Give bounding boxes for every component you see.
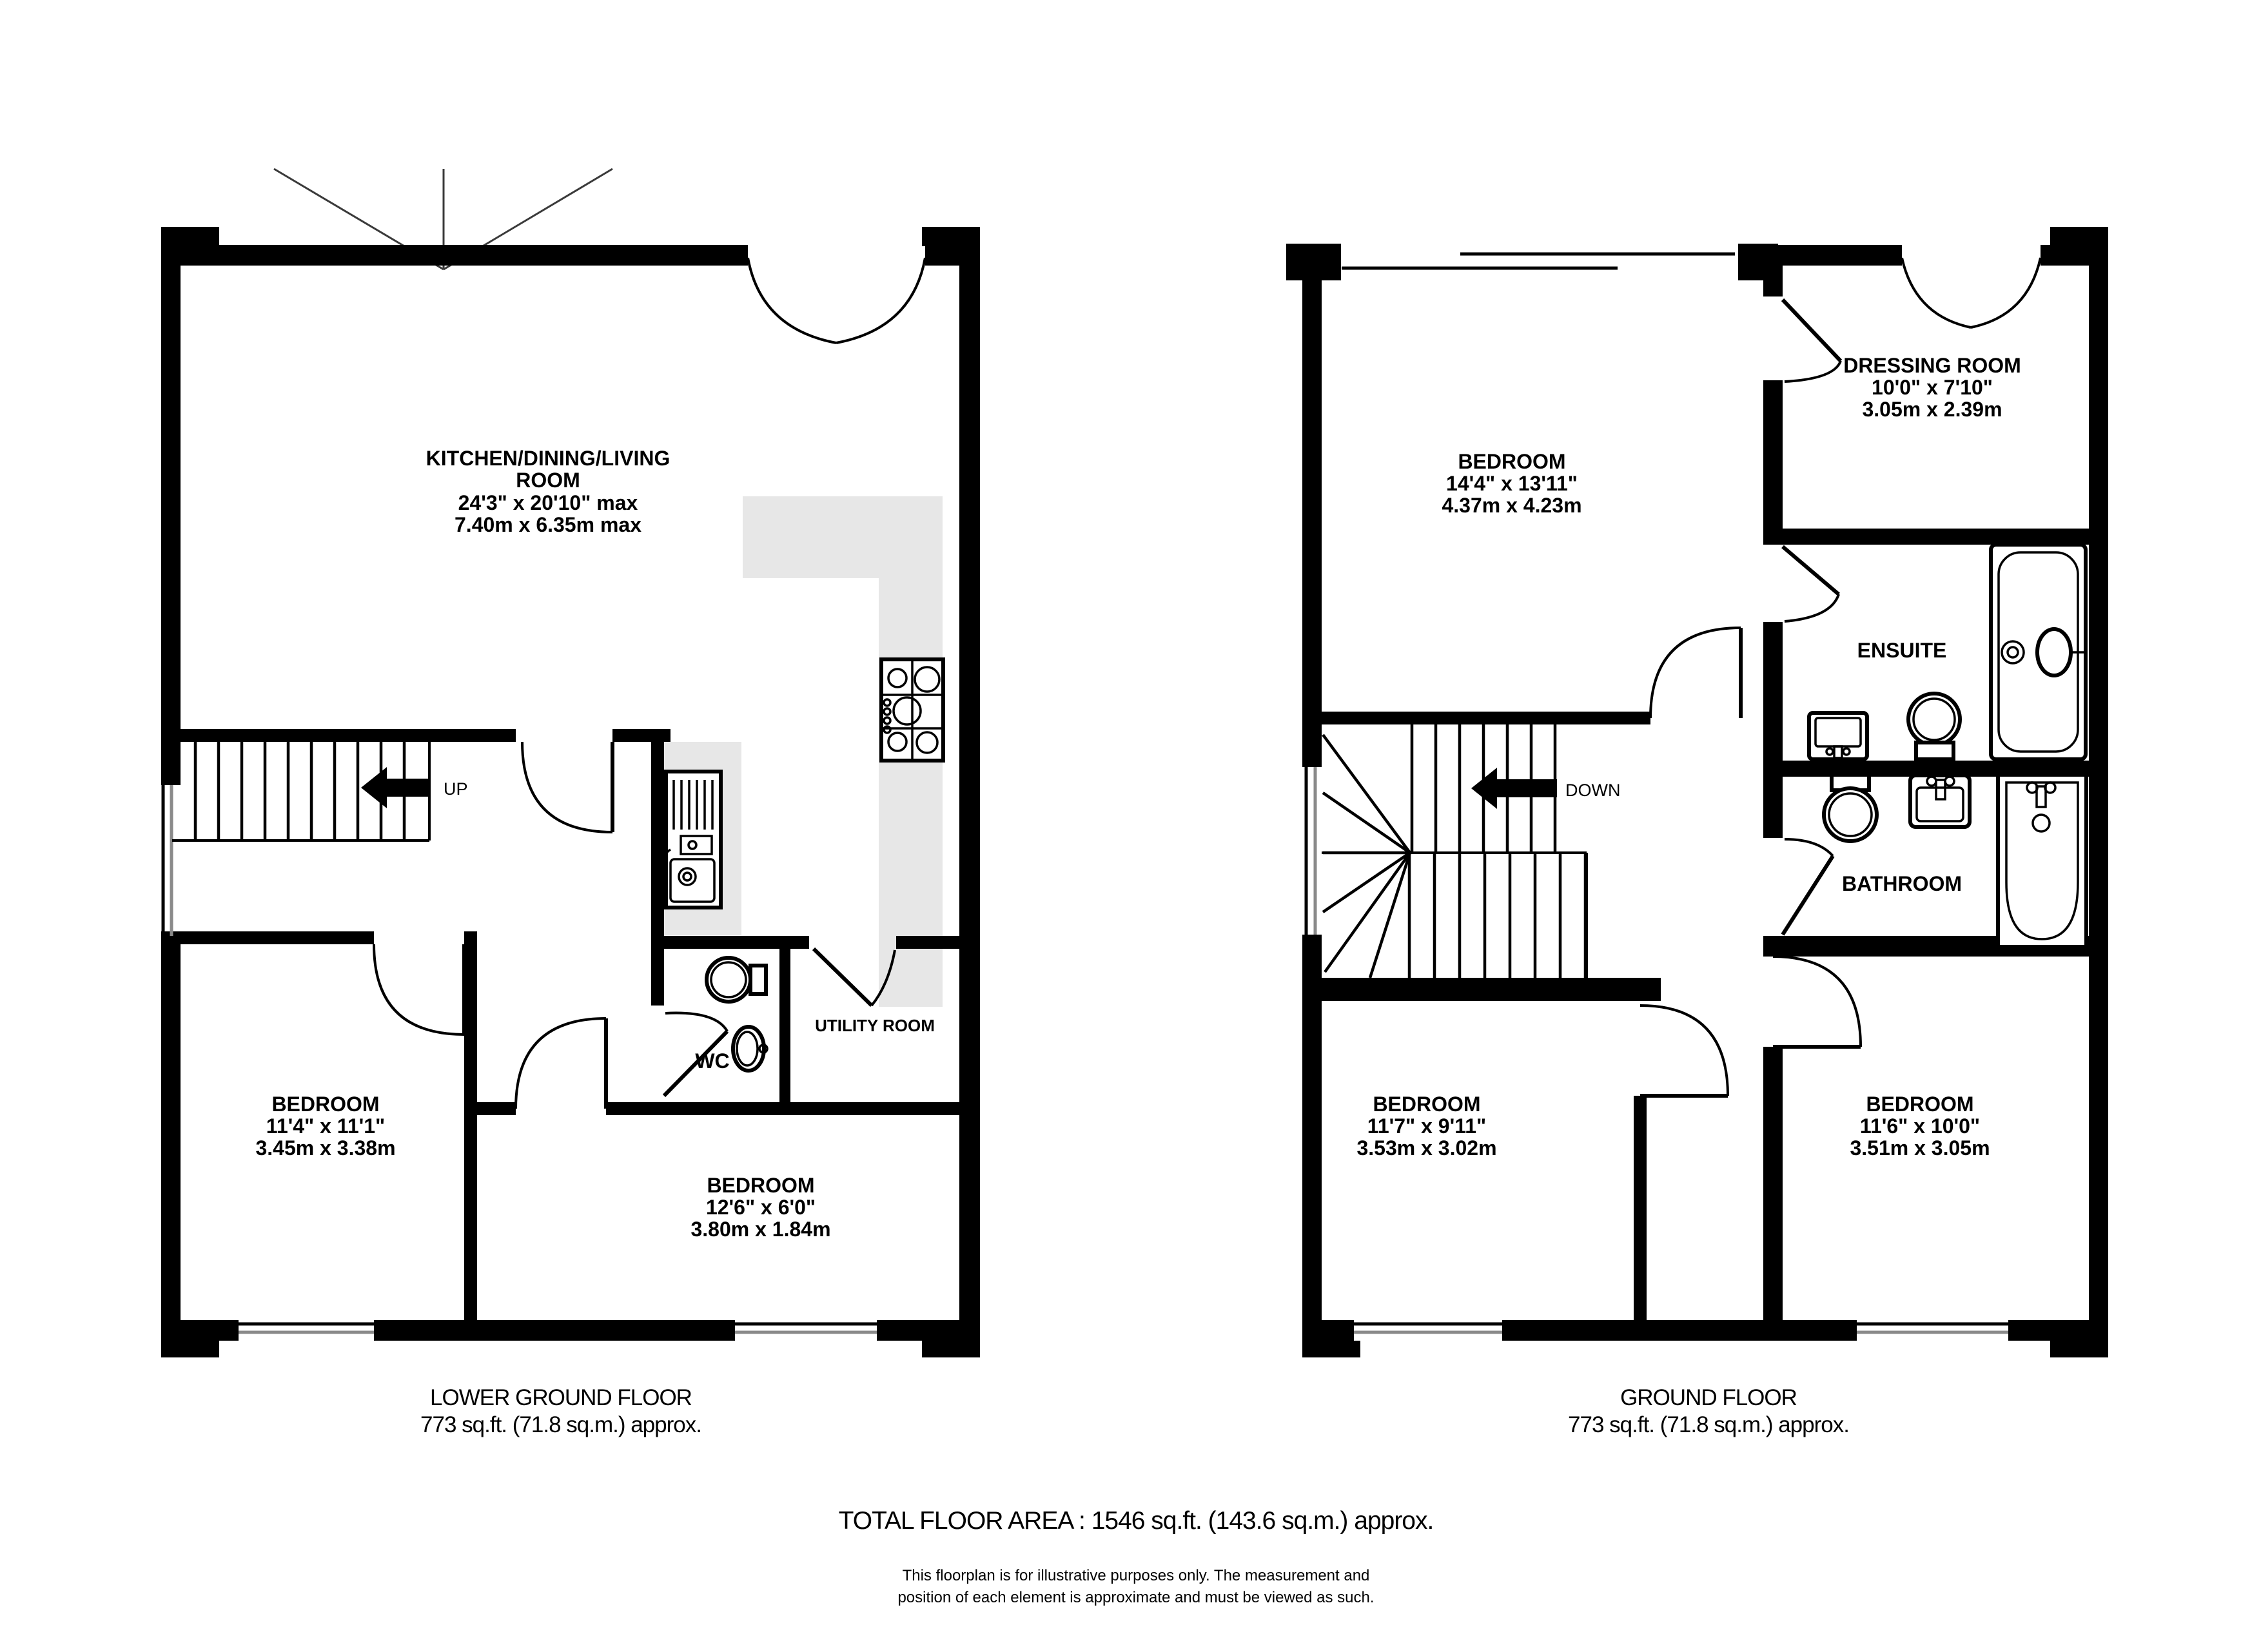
stairs-up: UP (172, 742, 468, 841)
up-arrow-icon (361, 767, 428, 808)
wc-label: WC (695, 1049, 729, 1073)
bedroom-main-door (1650, 628, 1741, 718)
bathroom-door (1783, 839, 1833, 935)
bedroom2-label: BEDROOM 12'6" x 6'0" 3.80m x 1.84m (690, 1174, 830, 1241)
bathroom-sink-icon (1910, 775, 1970, 827)
wc-toilet-icon (707, 958, 766, 1002)
lower-windows (163, 785, 877, 1332)
kitchen-hall-door (522, 742, 612, 832)
dressing-name: DRESSING ROOM (1843, 354, 2021, 377)
disclaimer-line1: This floorplan is for illustrative purpo… (903, 1567, 1370, 1584)
bedroom2-door (516, 1018, 606, 1109)
bedroom-right-metric: 3.51m x 3.05m (1850, 1136, 1990, 1160)
bedroom-left-door (1640, 1006, 1728, 1096)
bedroom-left-label: BEDROOM 11'7" x 9'11" 3.53m x 3.02m (1356, 1093, 1496, 1160)
bedroom-main-name: BEDROOM (1458, 450, 1565, 473)
disclaimer-line2: position of each element is approximate … (897, 1589, 1374, 1606)
ground-floor-area: 773 sq.ft. (71.8 sq.m.) approx. (1568, 1412, 1849, 1437)
footer: TOTAL FLOOR AREA : 1546 sq.ft. (143.6 sq… (839, 1507, 1434, 1606)
dressing-door (1783, 300, 1841, 382)
ensuite-door (1783, 547, 1839, 621)
hob-icon (881, 659, 943, 761)
dressing-metric: 3.05m x 2.39m (1862, 398, 2002, 421)
bathroom-bathtub-icon (1998, 775, 2086, 947)
bedroom-right-label: BEDROOM 11'6" x 10'0" 3.51m x 3.05m (1850, 1093, 1990, 1160)
ensuite-sink-icon (1809, 713, 1867, 759)
kitchen-metric: 7.40m x 6.35m max (455, 513, 641, 536)
kitchen-label: KITCHEN/DINING/LIVING ROOM 24'3" x 20'10… (426, 447, 670, 536)
bedroom1-metric: 3.45m x 3.38m (255, 1136, 395, 1160)
stairs-up-label: UP (444, 779, 468, 799)
lower-floor-title: LOWER GROUND FLOOR (430, 1385, 692, 1410)
ensuite-bath-icon (1991, 545, 2086, 759)
floorplan-page: UP (0, 0, 2261, 1652)
kitchen-dims: 24'3" x 20'10" max (458, 491, 638, 514)
ground-floor-title: GROUND FLOOR (1620, 1385, 1797, 1410)
kitchen-name-line2: ROOM (516, 469, 580, 492)
bedroom-right-name: BEDROOM (1866, 1093, 1973, 1116)
lower-ground-floor-plan: UP (161, 169, 980, 1437)
lower-floor-area: 773 sq.ft. (71.8 sq.m.) approx. (420, 1412, 701, 1437)
bedroom-main-metric: 4.37m x 4.23m (1442, 494, 1581, 517)
lower-caption: LOWER GROUND FLOOR 773 sq.ft. (71.8 sq.m… (420, 1385, 701, 1437)
bedroom1-dims: 11'4" x 11'1" (266, 1114, 385, 1138)
bedroom1-name: BEDROOM (271, 1093, 379, 1116)
bedroom2-name: BEDROOM (707, 1174, 814, 1197)
stairs-down-label: DOWN (1565, 781, 1620, 800)
ground-interior-walls (1315, 266, 2089, 1320)
bedroom-left-name: BEDROOM (1373, 1093, 1480, 1116)
total-floor-area: TOTAL FLOOR AREA : 1546 sq.ft. (143.6 sq… (839, 1507, 1434, 1535)
bedroom1-label: BEDROOM 11'4" x 11'1" 3.45m x 3.38m (255, 1093, 395, 1160)
ground-floor-plan: DOWN (1286, 227, 2108, 1437)
french-doors (748, 258, 925, 343)
bedroom-right-door (1773, 957, 1861, 1047)
bedroom1-door (374, 944, 464, 1035)
floorplan-drawing: UP (0, 0, 2261, 1652)
bedroom2-dims: 12'6" x 6'0" (706, 1196, 816, 1219)
bedroom-main-dims: 14'4" x 13'11" (1446, 472, 1578, 495)
ensuite-toilet-icon (1908, 694, 1960, 759)
dressing-double-doors (1902, 258, 2041, 327)
utility-label: UTILITY ROOM (815, 1016, 935, 1035)
bathroom-toilet-icon (1824, 775, 1877, 841)
dressing-dims: 10'0" x 7'10" (1872, 376, 1993, 399)
stairs-down: DOWN (1322, 724, 1620, 978)
lower-outer-walls (161, 227, 980, 1357)
wc-sink-icon (733, 1027, 767, 1071)
bedroom2-metric: 3.80m x 1.84m (690, 1218, 830, 1241)
bedroom-left-metric: 3.53m x 3.02m (1356, 1136, 1496, 1160)
kitchen-sink-icon (664, 772, 721, 908)
kitchen-name-line1: KITCHEN/DINING/LIVING (426, 447, 670, 470)
ground-caption: GROUND FLOOR 773 sq.ft. (71.8 sq.m.) app… (1568, 1385, 1849, 1437)
bathroom-label: BATHROOM (1842, 872, 1962, 895)
bedroom-main-label: BEDROOM 14'4" x 13'11" 4.37m x 4.23m (1442, 450, 1581, 517)
bedroom-right-dims: 11'6" x 10'0" (1860, 1114, 1980, 1138)
bedroom-left-dims: 11'7" x 9'11" (1367, 1114, 1486, 1138)
ensuite-label: ENSUITE (1857, 639, 1947, 662)
dressing-room-label: DRESSING ROOM 10'0" x 7'10" 3.05m x 2.39… (1843, 354, 2021, 421)
